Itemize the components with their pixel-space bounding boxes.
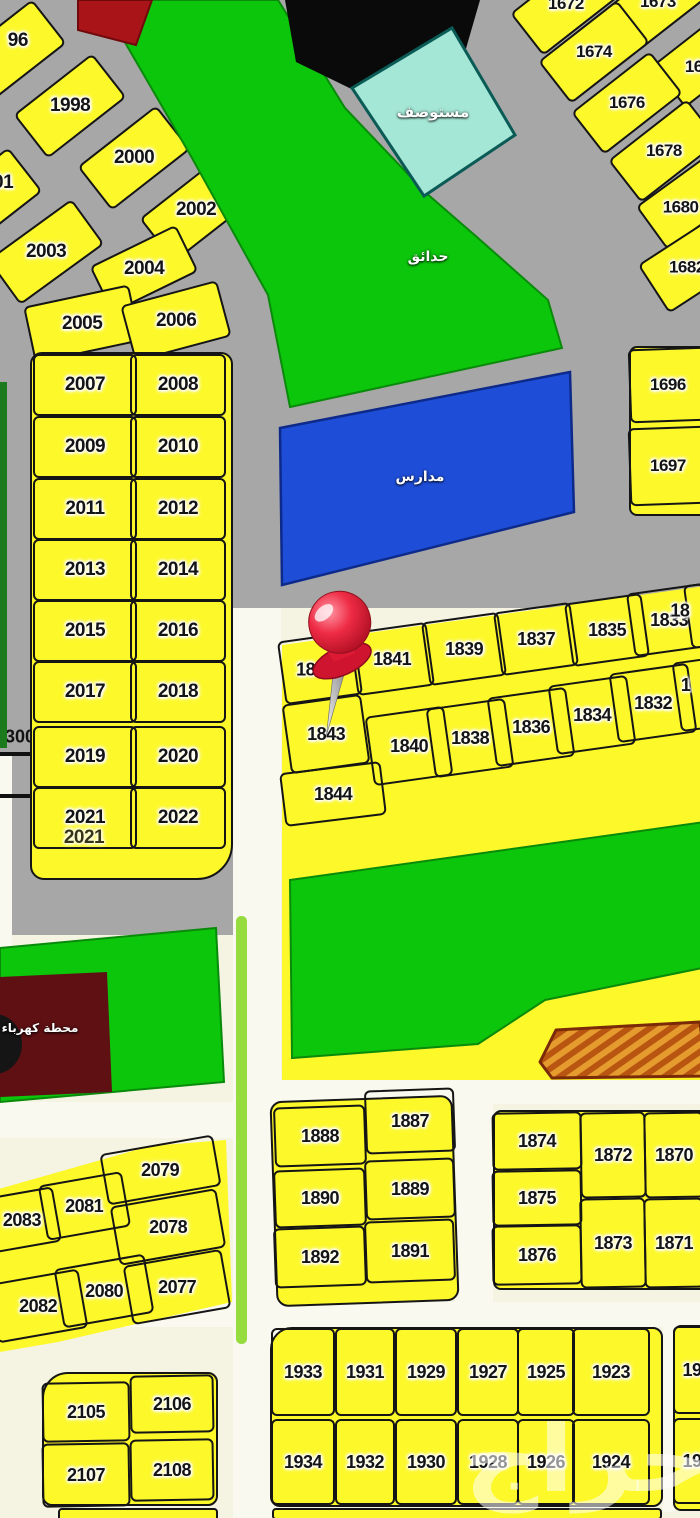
plot-number: 2016 — [158, 620, 198, 642]
plot-number: 1998 — [50, 95, 90, 117]
plot-cell: 2022 — [130, 787, 226, 849]
plot-cell: 1925 — [517, 1328, 575, 1416]
plot-number: 2082 — [19, 1296, 57, 1317]
plot-number: 1923 — [592, 1362, 630, 1383]
plot-number: 1834 — [573, 705, 611, 726]
plot-number: 1838 — [451, 728, 489, 749]
plot-cell: 1927 — [457, 1328, 519, 1416]
plot-number: 1929 — [407, 1362, 445, 1383]
plot-number: 1682 — [669, 258, 700, 278]
plot-cell: 1874 — [492, 1111, 583, 1171]
plot-cell: 1929 — [395, 1328, 457, 1416]
plot-cell: 2017 — [33, 661, 137, 723]
plot-number: 1931 — [346, 1362, 384, 1383]
plot-cell: 2007 — [33, 354, 137, 416]
plot-number: 2079 — [141, 1160, 179, 1181]
plot-number: 2108 — [153, 1460, 191, 1481]
plot-cell: 1870 — [643, 1111, 700, 1198]
plot-cell: 1933 — [271, 1328, 335, 1416]
plot-number: 2013 — [65, 559, 105, 581]
plot-cell: 1873 — [579, 1197, 647, 1288]
plot-cell: 1934 — [271, 1419, 335, 1505]
plot-number: 2019 — [65, 746, 105, 768]
plot-cell: 2019 — [33, 726, 137, 788]
plot-number: 1874 — [518, 1131, 556, 1152]
plot-number: 1875 — [518, 1188, 556, 1209]
plot-number: 2006 — [156, 310, 196, 332]
plot-number: 1927 — [469, 1362, 507, 1383]
plot-map: 300 961998200020020120032004200520062007… — [0, 0, 700, 1518]
plot-number: 1889 — [391, 1179, 429, 1200]
plot-cell: 1875 — [492, 1169, 583, 1227]
plot-number: 2014 — [158, 559, 198, 581]
plot-number: 1892 — [301, 1247, 339, 1268]
plot-cell: 2016 — [130, 600, 226, 662]
plot-cell: 2003 — [0, 199, 105, 305]
plot-number: 01 — [0, 172, 13, 194]
plot-cell: 2013 — [33, 539, 137, 601]
plot-number: 1932 — [346, 1452, 384, 1473]
plot-number: 1924 — [592, 1452, 630, 1473]
plot-cell: 2014 — [130, 539, 226, 601]
plot-number: 1933 — [284, 1362, 322, 1383]
plot-number: 2000 — [114, 147, 154, 169]
plot-number: 1934 — [284, 1452, 322, 1473]
plot-cell: 1928 — [457, 1419, 519, 1505]
plot-cell: 1696 — [628, 347, 700, 424]
plot-cell: 2108 — [129, 1438, 214, 1501]
plot-cell: 1930 — [395, 1419, 457, 1505]
plot-number: 1890 — [301, 1188, 339, 1209]
plot-number: 2015 — [65, 620, 105, 642]
plot-number: 96 — [8, 30, 28, 52]
plot-number: 1837 — [517, 629, 555, 650]
plot-number: 2004 — [124, 258, 164, 280]
plot-number: 2021 — [65, 807, 105, 829]
plot-number: 2107 — [67, 1465, 105, 1486]
plot-number: 1832 — [634, 693, 672, 714]
plot-number: 1674 — [576, 42, 612, 62]
plot-cell: 19 — [673, 1326, 700, 1414]
plot-cell: 2018 — [130, 661, 226, 723]
plot-cell: 2107 — [41, 1442, 130, 1508]
plot-cell: 2105 — [41, 1381, 130, 1443]
plot-cell: 1890 — [273, 1167, 367, 1228]
plot-cell: 1892 — [273, 1225, 367, 1288]
plot-number: 1696 — [650, 375, 686, 395]
plot-number: 19 — [682, 1360, 700, 1381]
plot-cell: 1923 — [572, 1328, 650, 1416]
plot-number: 1836 — [512, 717, 550, 738]
plot-cell: 2020 — [130, 726, 226, 788]
plot-number: 1871 — [655, 1233, 693, 1254]
plot-cell: 1871 — [643, 1197, 700, 1288]
plot-number: 2083 — [3, 1209, 41, 1230]
plot-number: 2022 — [158, 807, 198, 829]
plot-number: 2105 — [67, 1402, 105, 1423]
plot-number: 2018 — [158, 681, 198, 703]
plot-number: 1680 — [663, 197, 699, 217]
plot-number: 2008 — [158, 374, 198, 396]
plot-number: 1926 — [527, 1452, 565, 1473]
plot-cell: 2010 — [130, 416, 226, 478]
plot-number: 2020 — [158, 746, 198, 768]
plot-cell: 1888 — [273, 1104, 367, 1167]
plot-number: 1 — [681, 675, 691, 696]
plot-cell: 1876 — [491, 1224, 582, 1286]
plot-cell: 1932 — [335, 1419, 395, 1505]
plot-number: 1673 — [640, 0, 676, 12]
plot-number: 19 — [682, 1451, 700, 1472]
plot-number: 2106 — [153, 1394, 191, 1415]
plot-cell: 2011 — [33, 478, 137, 540]
plot-cell: 2015 — [33, 600, 137, 662]
plot-number: 2017 — [65, 681, 105, 703]
plot-number: 2002 — [176, 199, 216, 221]
plot-number: 1891 — [391, 1241, 429, 1262]
plot-number: 1676 — [609, 93, 645, 113]
plot-number: 1678 — [646, 141, 682, 161]
plot-cell: 1697 — [628, 426, 700, 507]
plot-layer: 9619982000200201200320042005200620072008… — [0, 0, 700, 1518]
plot-label-ghost: 2021 — [64, 827, 104, 849]
plot-number: 1844 — [314, 784, 352, 805]
south-block-outline — [272, 1508, 662, 1518]
plot-number: 2010 — [158, 436, 198, 458]
plot-cell: 19 — [673, 1418, 700, 1504]
plot-number: 18 — [671, 600, 690, 621]
plot-number: 2003 — [26, 241, 66, 263]
plot-number: 2011 — [65, 498, 104, 520]
plot-number: 1925 — [527, 1362, 565, 1383]
plot-number: 1839 — [445, 639, 483, 660]
plot-cell: 2106 — [130, 1374, 215, 1433]
plot-number: 2080 — [85, 1281, 123, 1302]
location-pin-icon — [286, 584, 416, 739]
plot-number: 1876 — [518, 1245, 556, 1266]
plot-number: 1887 — [391, 1111, 429, 1132]
plot-number: 2077 — [158, 1277, 196, 1298]
plot-number: 2078 — [149, 1217, 187, 1238]
southwest-block-outline — [58, 1508, 218, 1518]
plot-number: 16 — [685, 57, 700, 77]
plot-number: 1672 — [548, 0, 584, 14]
schools-label: مدارس — [396, 469, 445, 485]
plot-cell: 1887 — [364, 1087, 456, 1154]
plot-number: 1888 — [301, 1126, 339, 1147]
plot-cell: 1872 — [579, 1111, 646, 1198]
plot-cell: 2009 — [33, 416, 137, 478]
plot-number: 1873 — [594, 1233, 632, 1254]
park-label: حدائق — [408, 249, 449, 265]
plot-cell: 1924 — [572, 1419, 650, 1505]
plot-number: 2009 — [65, 436, 105, 458]
plot-number: 1870 — [655, 1145, 693, 1166]
plot-cell: 1931 — [335, 1328, 395, 1416]
plot-number: 1697 — [650, 456, 686, 476]
plot-cell: 2008 — [130, 354, 226, 416]
plot-number: 1930 — [407, 1452, 445, 1473]
power-station-label: محطة كهرباء — [2, 1021, 79, 1035]
plot-cell: 2012 — [130, 478, 226, 540]
plot-cell: 1891 — [364, 1218, 456, 1283]
plot-number: 1872 — [594, 1145, 632, 1166]
plot-number: 1928 — [469, 1452, 507, 1473]
plot-number: 2012 — [158, 498, 198, 520]
plot-cell: 1926 — [517, 1419, 575, 1505]
plot-number: 2005 — [62, 313, 102, 335]
clinic-label: مستوصف — [397, 103, 469, 121]
plot-number: 1835 — [588, 620, 626, 641]
plot-cell: 1889 — [364, 1157, 456, 1220]
plot-number: 2007 — [65, 374, 105, 396]
plot-number: 2081 — [65, 1196, 103, 1217]
